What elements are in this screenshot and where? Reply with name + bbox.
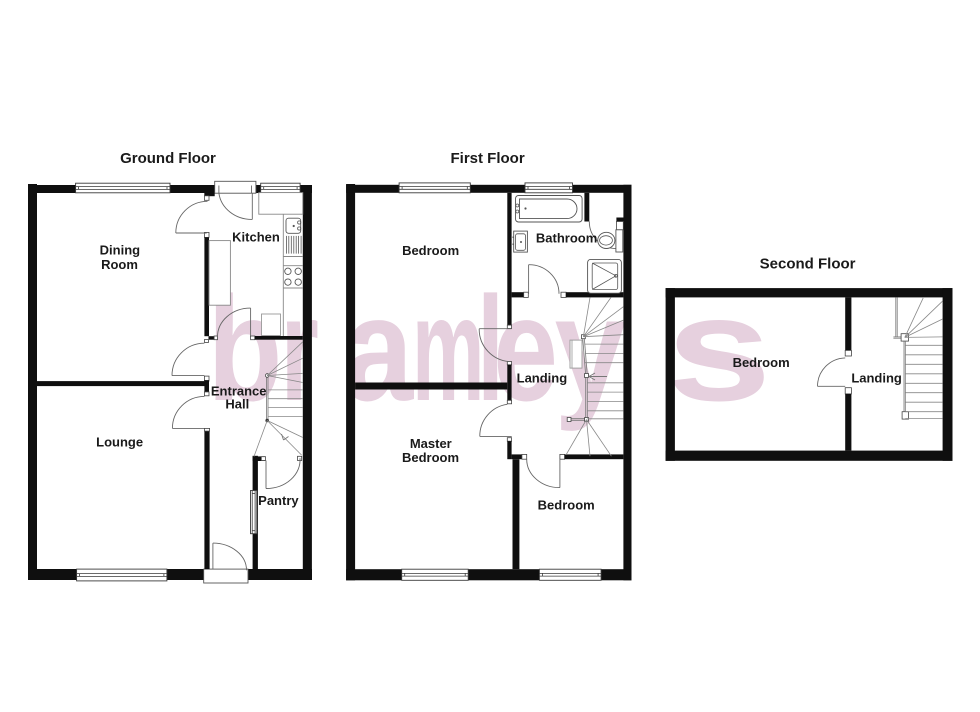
svg-text:Landing: Landing (851, 371, 902, 386)
svg-text:Lounge: Lounge (96, 435, 143, 450)
svg-text:Pantry: Pantry (258, 493, 299, 508)
svg-text:Dining: Dining (100, 243, 140, 258)
svg-text:Bedroom: Bedroom (402, 450, 459, 465)
svg-text:r: r (280, 266, 318, 432)
svg-text:Bedroom: Bedroom (402, 243, 459, 258)
svg-text:Landing: Landing (517, 371, 568, 386)
svg-text:Room: Room (101, 257, 138, 272)
svg-text:Master: Master (410, 436, 452, 451)
svg-text:Second Floor: Second Floor (760, 256, 856, 273)
svg-text:Bathroom: Bathroom (536, 231, 597, 246)
svg-text:Bedroom: Bedroom (538, 498, 595, 513)
svg-text:e: e (493, 266, 558, 432)
svg-text:m: m (412, 267, 484, 432)
svg-text:Ground Floor: Ground Floor (120, 150, 216, 167)
svg-text:Bedroom: Bedroom (733, 355, 790, 370)
svg-text:Hall: Hall (225, 397, 249, 412)
svg-text:First Floor: First Floor (451, 150, 525, 167)
svg-text:Kitchen: Kitchen (232, 230, 280, 245)
